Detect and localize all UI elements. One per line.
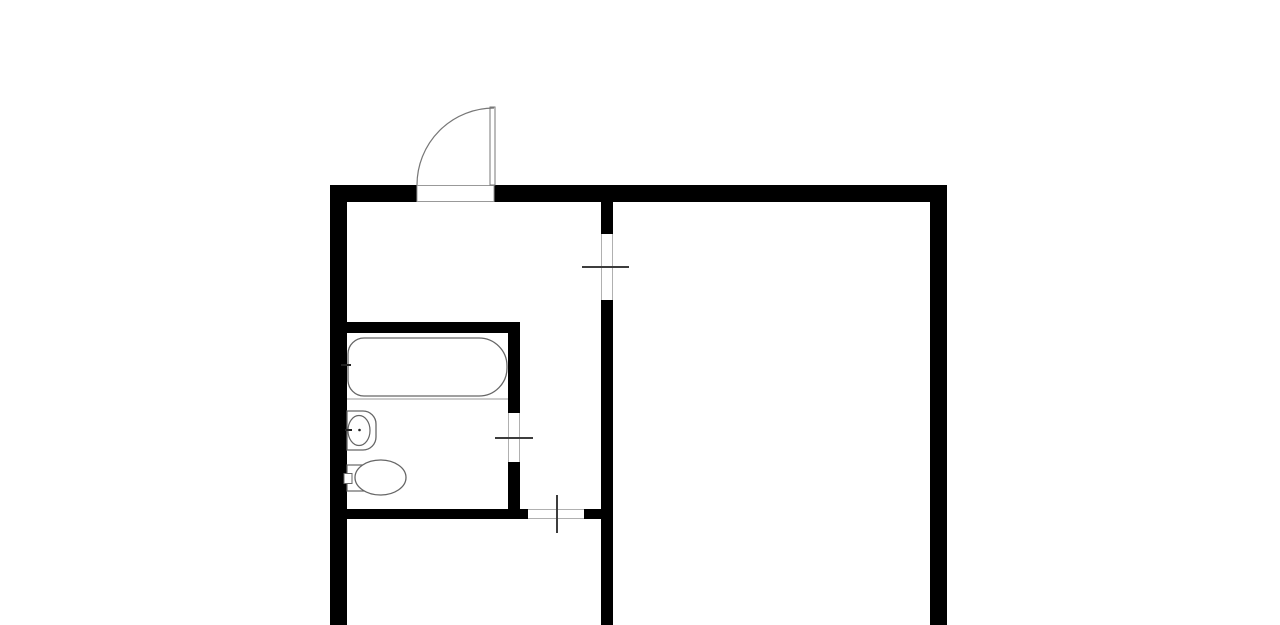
hall-bottom-wall-right — [584, 509, 601, 519]
entry-door-threshold — [417, 186, 494, 202]
entry-door-leaf — [490, 107, 495, 185]
bathroom-right-wall-upper — [508, 333, 520, 413]
toilet-bowl — [355, 460, 406, 495]
entry-door-swing-arc — [417, 108, 494, 185]
bathroom-right-wall-lower — [508, 462, 520, 509]
floor-plan — [0, 0, 1280, 625]
toilet-flush-button — [344, 474, 352, 484]
partition-wall-upper-segment — [601, 202, 613, 234]
exterior-top-wall-right — [494, 185, 947, 202]
exterior-left-wall — [330, 185, 347, 625]
partition-wall-lower-segment — [601, 300, 613, 625]
bathtub — [348, 338, 507, 396]
bathroom-top-wall — [347, 322, 520, 333]
hall-bottom-wall-left — [347, 509, 528, 519]
sink-drain-dot — [358, 429, 361, 432]
floor-plan-canvas — [0, 0, 1280, 625]
exterior-right-wall — [930, 185, 947, 625]
